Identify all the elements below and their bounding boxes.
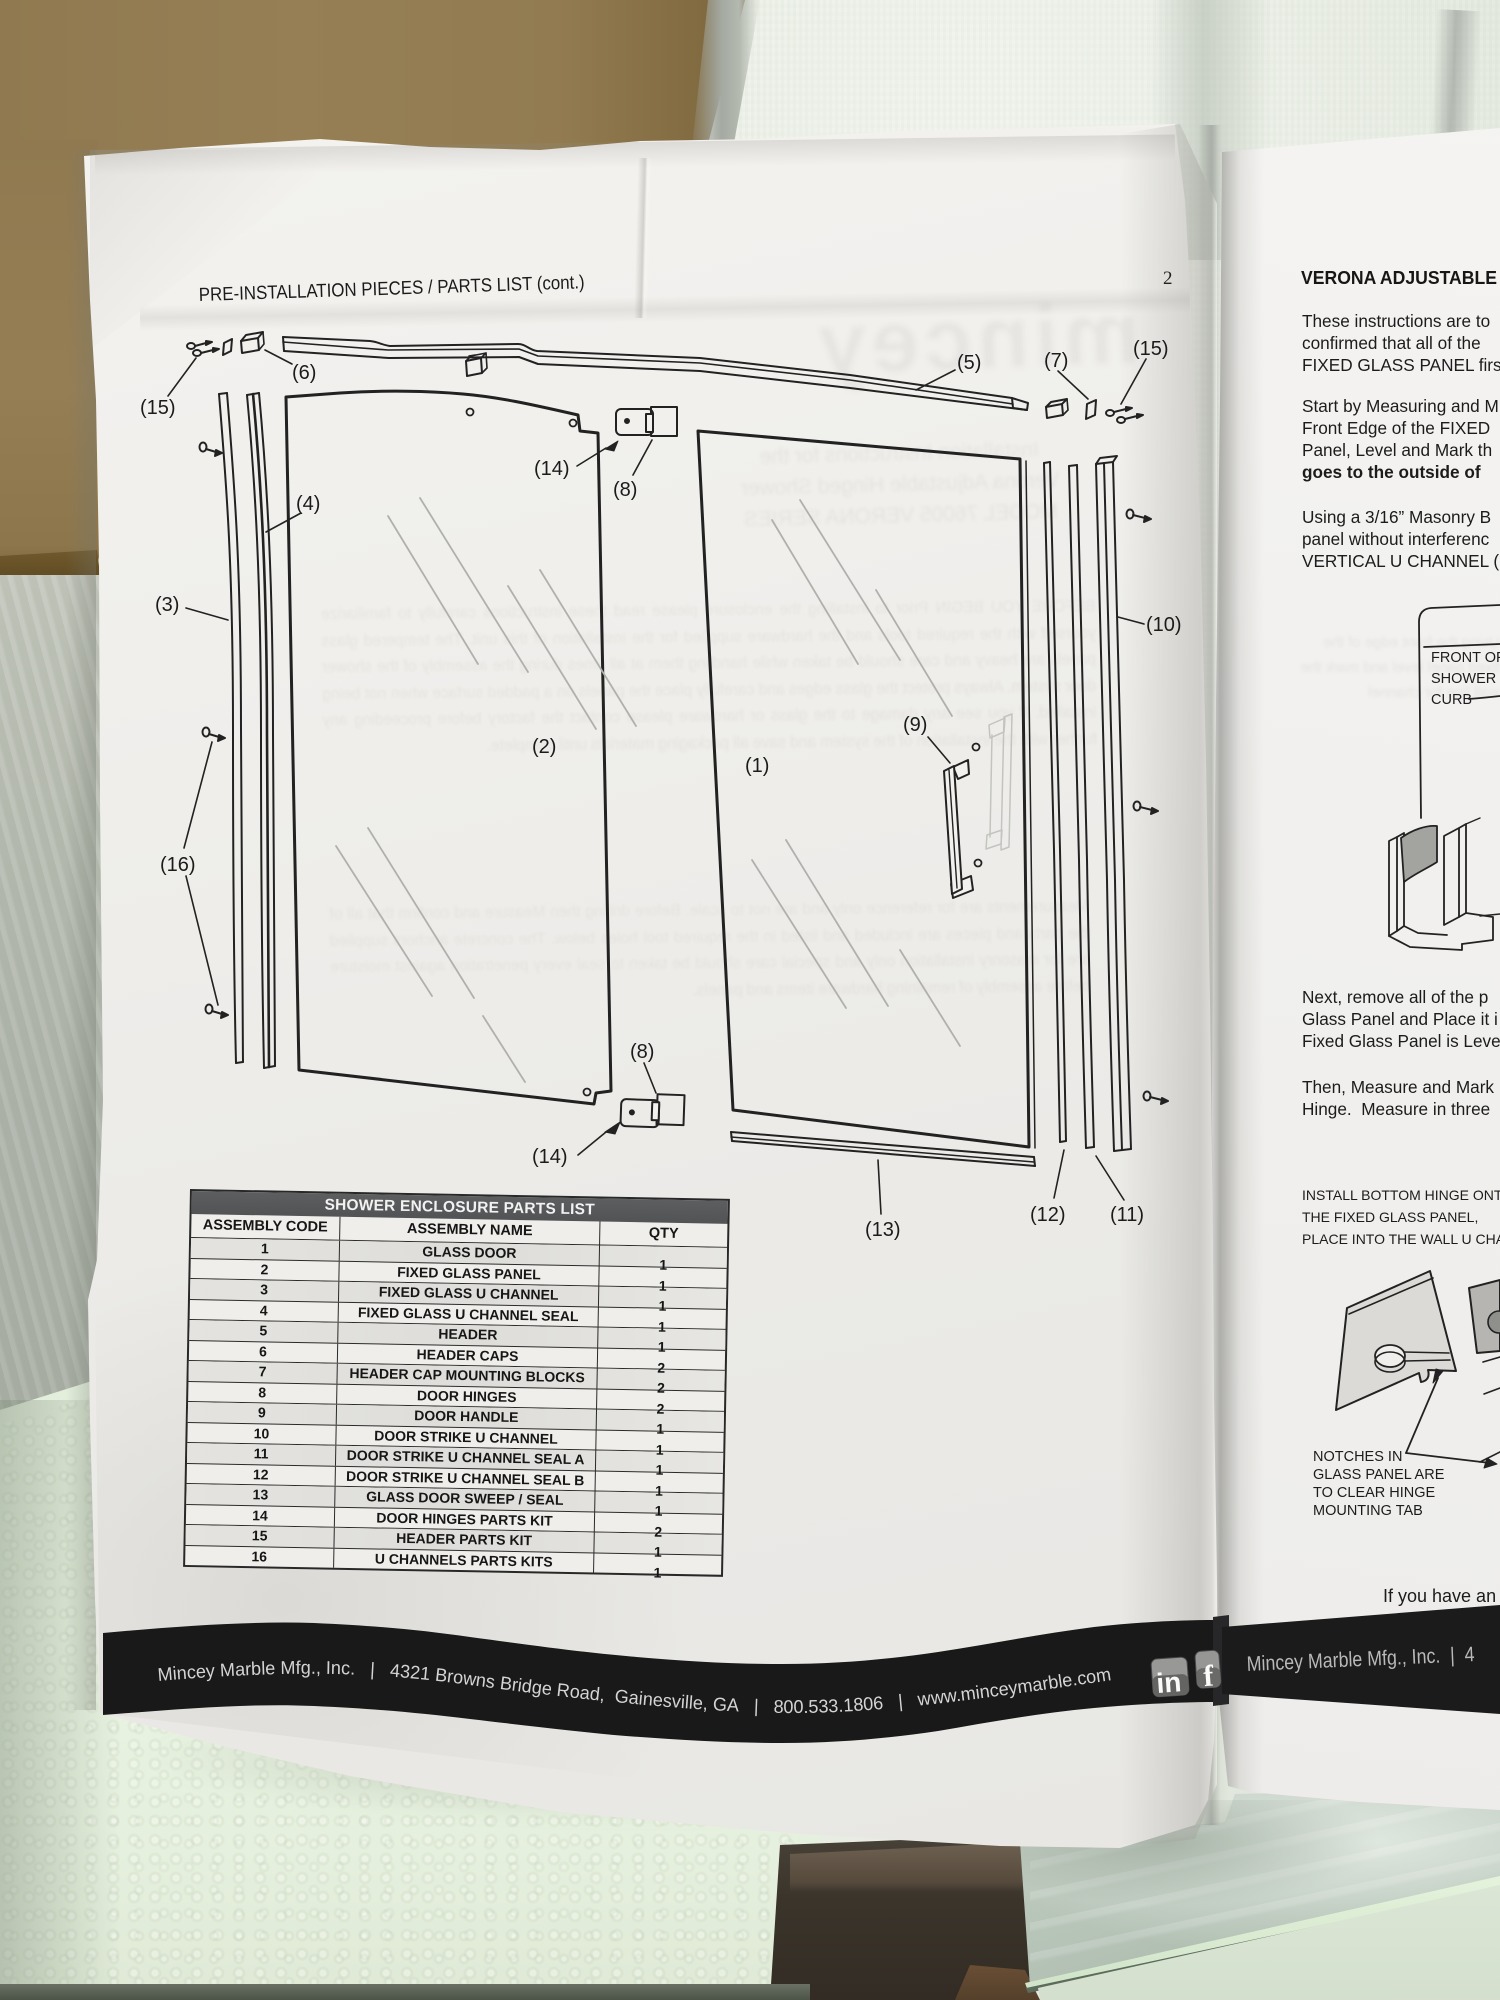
svg-text:confirmed that all of the: confirmed that all of the (1302, 333, 1481, 353)
svg-text:These instructions are to: These instructions are to (1302, 311, 1490, 331)
svg-text:(4): (4) (296, 493, 320, 515)
svg-text:(14): (14) (534, 458, 570, 480)
svg-text:Panel, Level and Mark th: Panel, Level and Mark th (1302, 440, 1492, 460)
svg-text:Hinge. Measure in three: Hinge. Measure in three (1302, 1099, 1490, 1119)
svg-text:Glass Panel and Place it i: Glass Panel and Place it i (1302, 1009, 1498, 1029)
svg-text:(15): (15) (1133, 338, 1169, 360)
svg-text:INSTALL BOTTOM HINGE ONT: INSTALL BOTTOM HINGE ONT (1302, 1187, 1500, 1203)
svg-text:in: in (1155, 1666, 1182, 1699)
svg-text:(2): (2) (532, 736, 556, 758)
svg-text:VERTICAL U CHANNEL (M: VERTICAL U CHANNEL (M (1302, 551, 1500, 571)
svg-text:FRONT OF: FRONT OF (1431, 650, 1500, 666)
svg-text:(14): (14) (532, 1146, 568, 1168)
svg-text:panel without interferenc: panel without interferenc (1302, 529, 1490, 549)
svg-text:Then, Measure and Mark: Then, Measure and Mark (1302, 1077, 1494, 1097)
svg-text:MOUNTING TAB: MOUNTING TAB (1313, 1503, 1423, 1519)
svg-text:2: 2 (1163, 268, 1173, 289)
svg-text:FIXED GLASS PANEL first: FIXED GLASS PANEL first (1302, 355, 1500, 375)
svg-text:THE FIXED GLASS PANEL,: THE FIXED GLASS PANEL, (1302, 1209, 1478, 1225)
svg-text:PLACE INTO THE WALL U CHA: PLACE INTO THE WALL U CHA (1302, 1231, 1500, 1247)
svg-text:SHOWER P: SHOWER P (1431, 671, 1500, 687)
svg-text:(13): (13) (865, 1219, 901, 1241)
svg-text:(12): (12) (1030, 1204, 1066, 1226)
svg-text:CURB: CURB (1431, 692, 1472, 708)
svg-text:(1): (1) (745, 755, 769, 777)
svg-text:(15): (15) (140, 397, 176, 419)
svg-text:If you have an: If you have an (1383, 1586, 1496, 1606)
svg-text:(16): (16) (160, 854, 196, 876)
svg-text:Start by Measuring and M: Start by Measuring and M (1302, 396, 1499, 416)
svg-text:(9): (9) (903, 714, 927, 736)
svg-text:(3): (3) (155, 594, 179, 616)
svg-text:VERONA ADJUSTABLE: VERONA ADJUSTABLE (1301, 267, 1497, 288)
svg-text:(7): (7) (1044, 350, 1068, 372)
svg-text:TO CLEAR HINGE: TO CLEAR HINGE (1313, 1485, 1436, 1501)
svg-text:(5): (5) (957, 352, 981, 374)
svg-text:(8): (8) (630, 1041, 654, 1063)
svg-text:(8): (8) (613, 479, 637, 501)
svg-text:GLASS PANEL ARE: GLASS PANEL ARE (1313, 1467, 1445, 1483)
svg-text:Fixed Glass Panel is Leve: Fixed Glass Panel is Leve (1302, 1031, 1500, 1051)
svg-text:(11): (11) (1110, 1204, 1144, 1226)
svg-text:(6): (6) (292, 362, 316, 384)
svg-text:Next, remove all of the p: Next, remove all of the p (1302, 987, 1488, 1007)
svg-text:(10): (10) (1146, 614, 1182, 636)
svg-text:Using a 3/16” Masonry B: Using a 3/16” Masonry B (1302, 507, 1491, 527)
svg-text:PRE-INSTALLATION PIECES / PART: PRE-INSTALLATION PIECES / PARTS LIST (co… (198, 272, 584, 306)
svg-text:NOTCHES IN: NOTCHES IN (1313, 1449, 1402, 1465)
svg-text:Front Edge of the FIXED: Front Edge of the FIXED (1302, 418, 1490, 438)
svg-text:goes to the outside of: goes to the outside of (1302, 462, 1481, 482)
